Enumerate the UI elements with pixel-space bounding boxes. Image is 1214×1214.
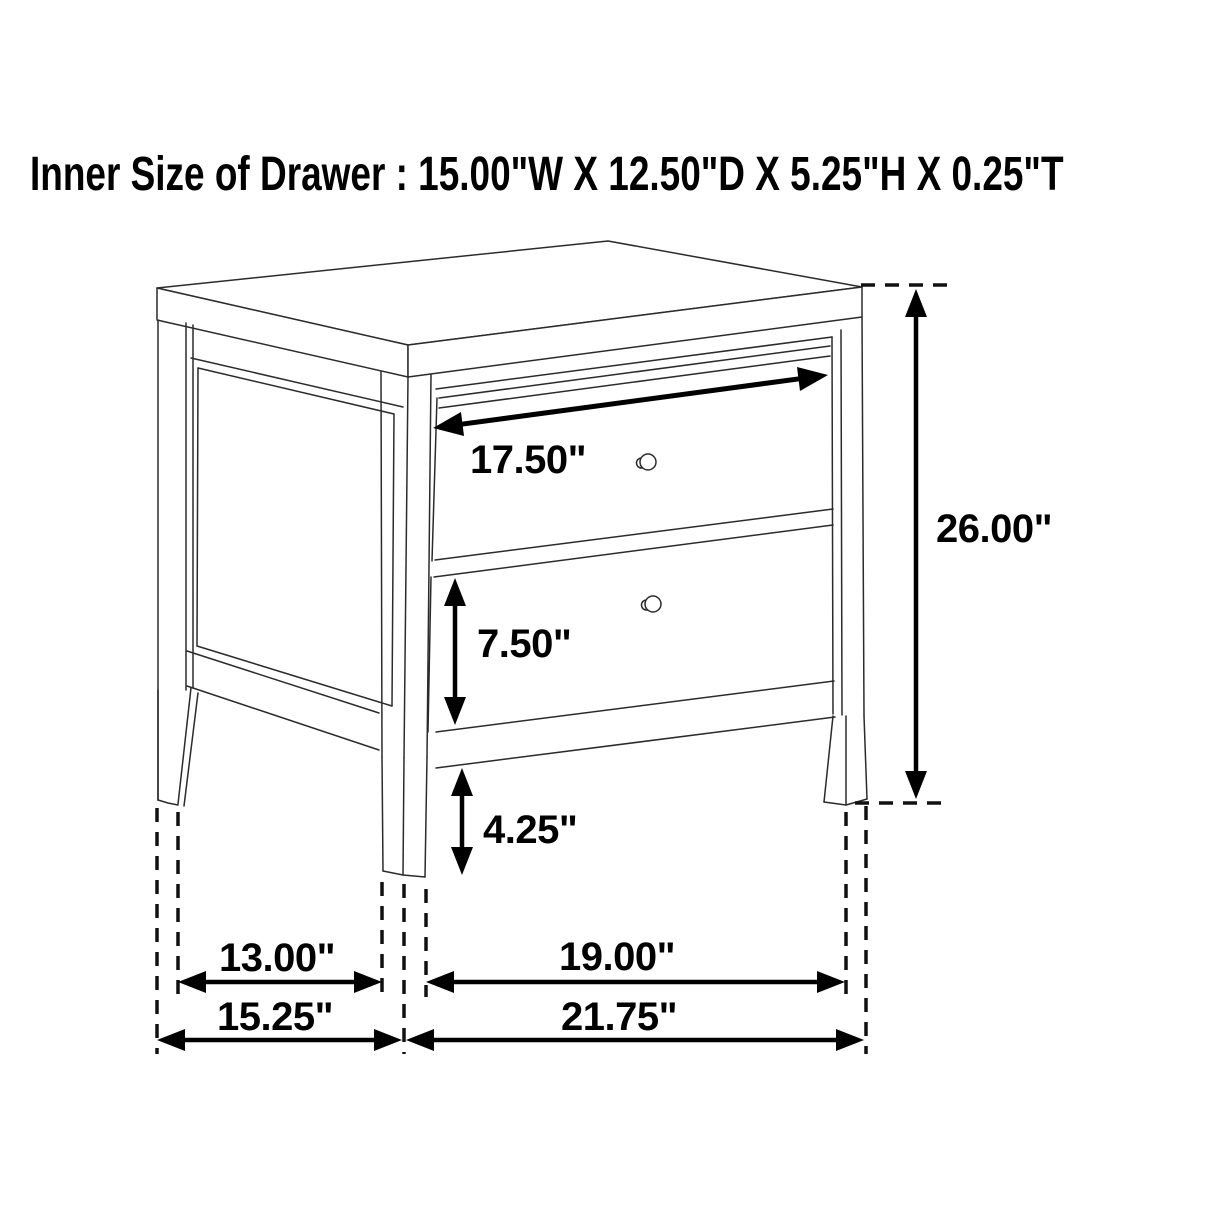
dim-label-overall-height: 26.00" [936, 507, 1052, 551]
bottom-drawer-knob [645, 596, 661, 612]
furniture-dimension-diagram: Inner Size of Drawer : 15.00"W X 12.50"D… [0, 0, 1214, 1214]
dim-arrow-overall-height [905, 289, 927, 799]
front-face-frame [428, 317, 864, 768]
dim-label-drawer-width: 17.50" [470, 438, 586, 482]
dim-arrow-bottom-drawer-height [444, 578, 466, 725]
dim-arrow-floor-clearance [451, 768, 473, 875]
dim-label-floor-clearance: 4.25" [483, 808, 577, 852]
top-drawer-knob [640, 454, 656, 470]
dim-label-front-leg-spacing: 19.00" [559, 935, 675, 979]
front-left-post [381, 372, 431, 758]
nightstand-drawing: 17.50" 7.50" 4.25" 26.00" 13.00" 19.00" … [0, 0, 1214, 1214]
dim-label-bottom-drawer-height: 7.50" [477, 622, 571, 666]
nightstand-top [157, 241, 862, 377]
dim-label-side-leg-spacing: 13.00" [219, 936, 335, 980]
dim-label-overall-depth: 15.25" [217, 995, 333, 1039]
dim-label-overall-width: 21.75" [561, 995, 677, 1039]
left-side-panel [158, 320, 403, 800]
